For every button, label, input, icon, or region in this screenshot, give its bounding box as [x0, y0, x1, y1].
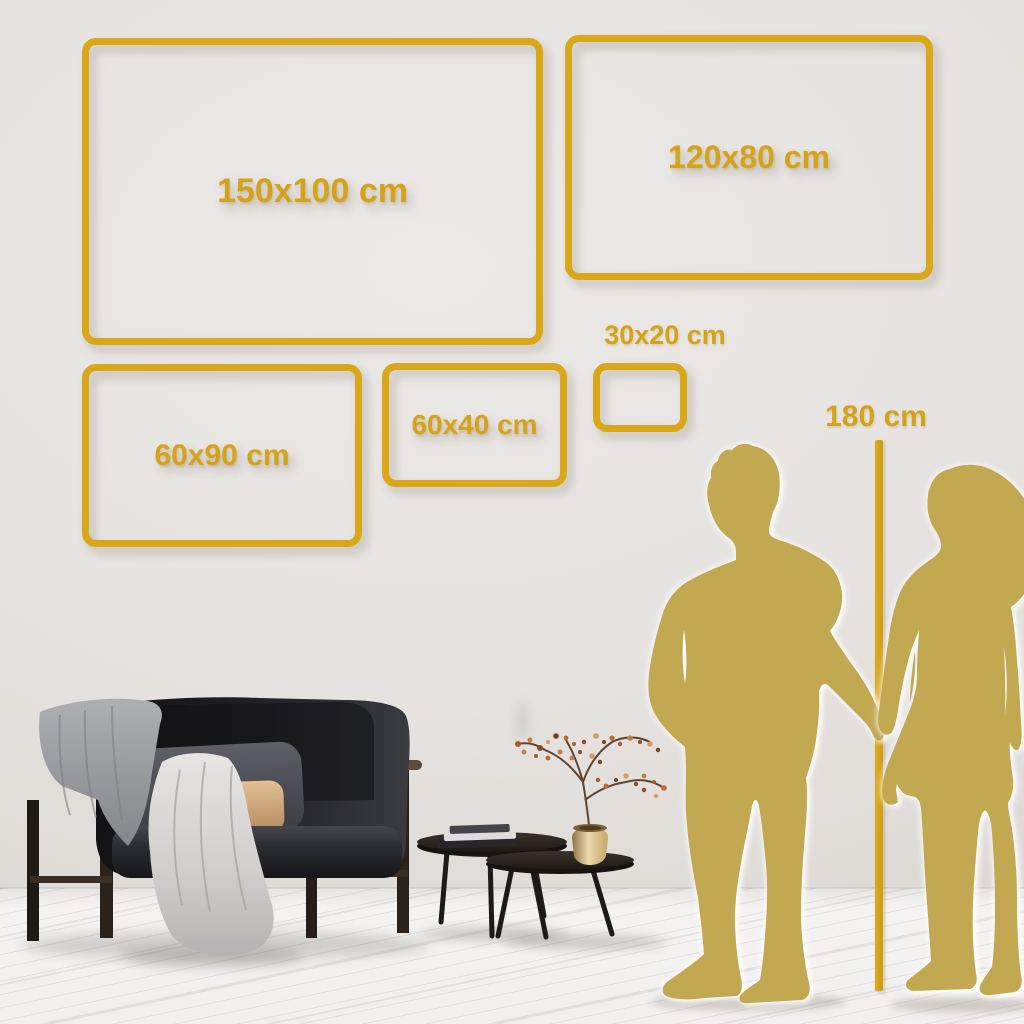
man-silhouette	[648, 444, 884, 1003]
size-frame-120x80: 120x80 cm	[565, 35, 933, 280]
woman-floor-shadow	[890, 998, 1024, 1012]
size-frame-60x40: 60x40 cm	[382, 363, 567, 487]
size-label-60x40: 60x40 cm	[411, 409, 537, 441]
canvas-size-guide-scene: 150x100 cm 120x80 cm 60x90 cm 60x40 cm 3…	[0, 0, 1024, 1024]
size-label-150x100: 150x100 cm	[217, 172, 408, 211]
height-label: 180 cm	[796, 400, 956, 434]
size-label-60x90: 60x90 cm	[154, 439, 289, 473]
sofa-illustration	[0, 680, 470, 980]
size-frame-30x20	[593, 363, 687, 432]
books-stack	[438, 824, 519, 849]
size-label-30x20: 30x20 cm	[575, 320, 755, 351]
size-label-120x80: 120x80 cm	[668, 139, 830, 176]
size-frame-60x90: 60x90 cm	[82, 364, 362, 547]
size-frame-150x100: 150x100 cm	[82, 38, 543, 345]
woman-silhouette	[878, 465, 1024, 995]
couple-silhouette	[600, 430, 1024, 1024]
